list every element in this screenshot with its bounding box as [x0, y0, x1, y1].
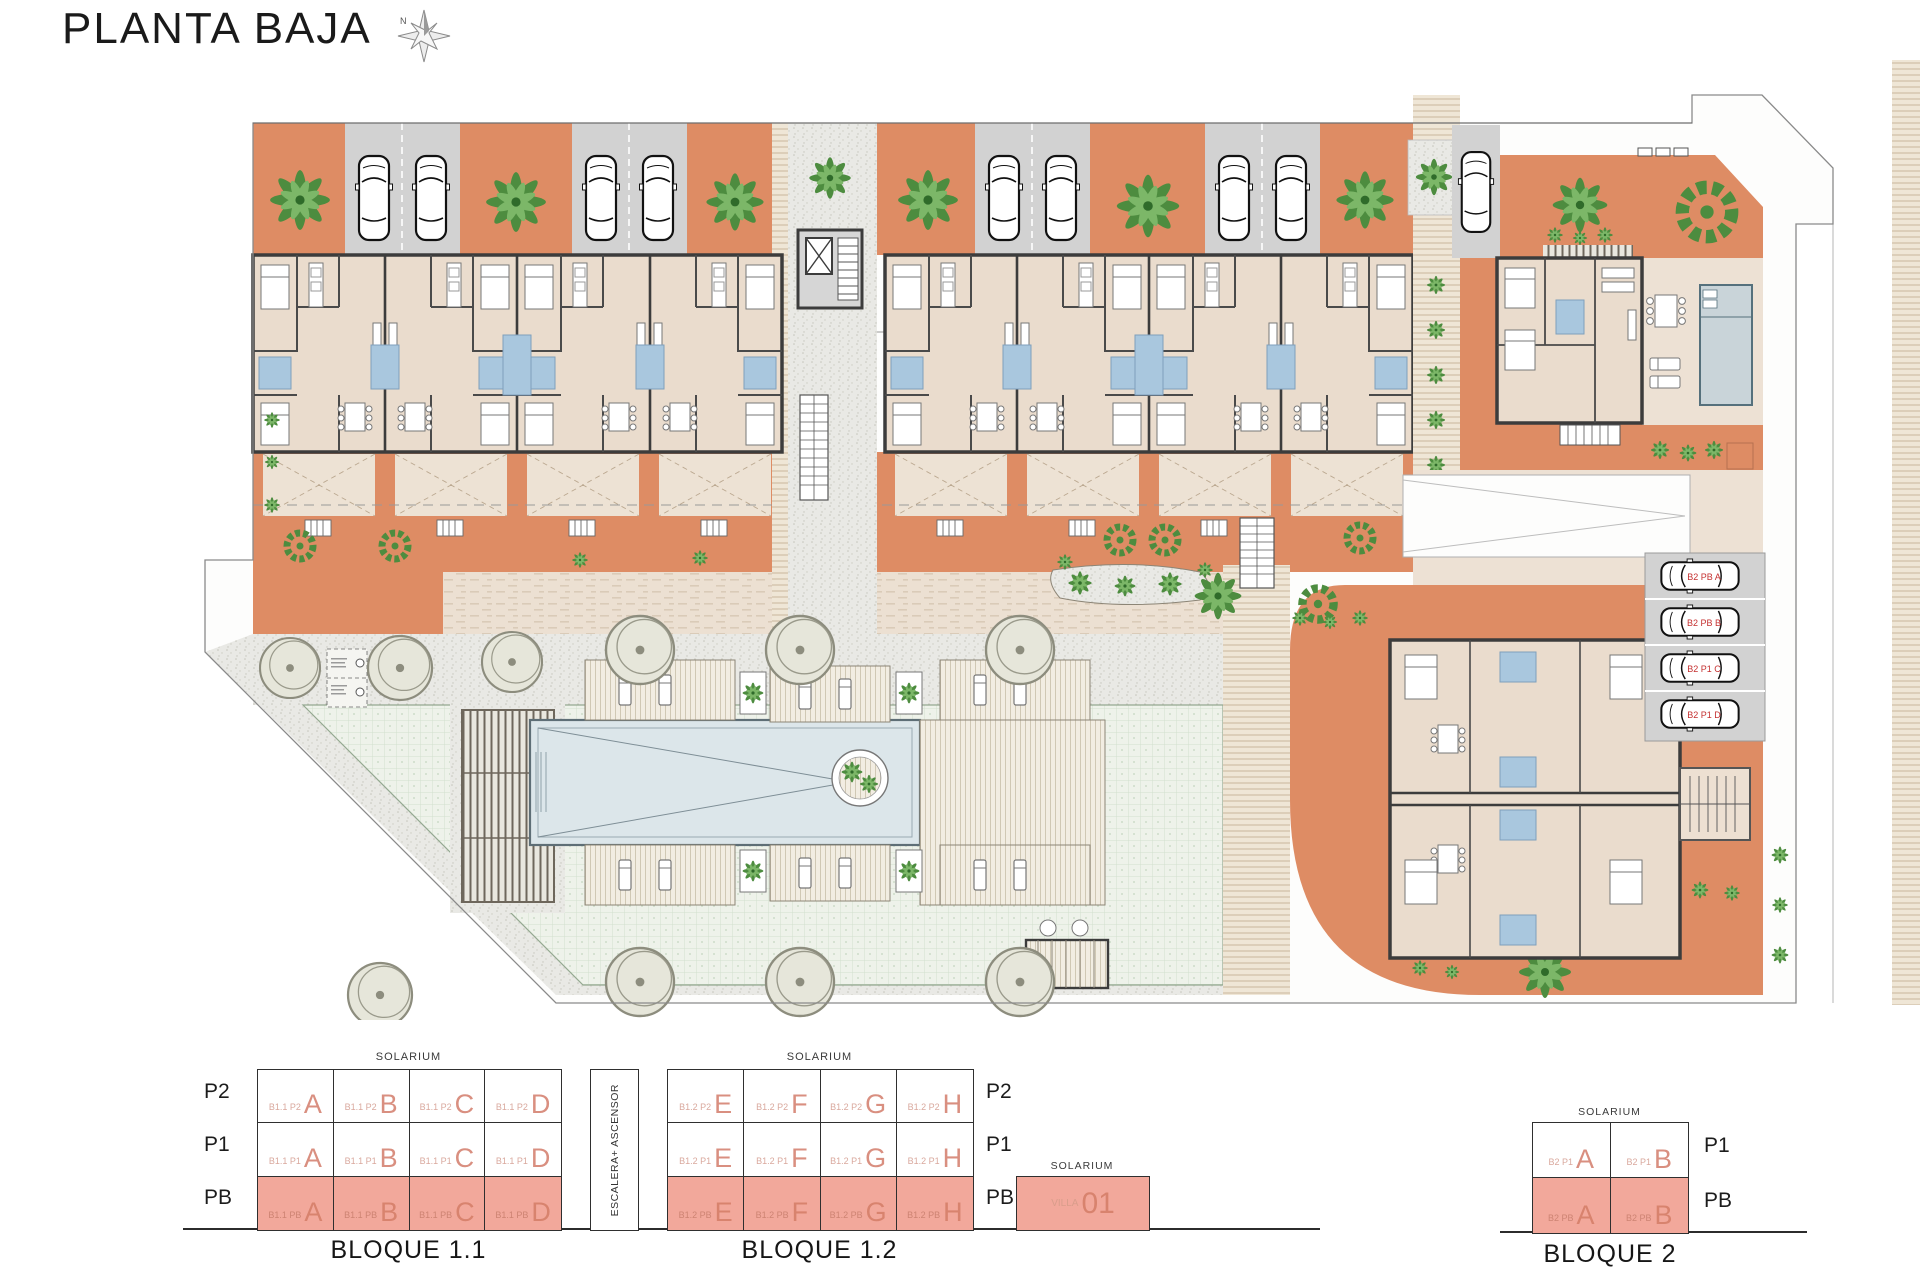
row-label-b12-p1: P1: [986, 1133, 1012, 1157]
bloque-2-table: B2 P1A B2 P1B B2 PBA B2 PBB: [1532, 1122, 1689, 1234]
bloque2-drive: [1403, 475, 1690, 557]
unit-cell[interactable]: B1.1 P1D: [485, 1123, 561, 1176]
east-road: [1833, 60, 1920, 1005]
row-label-b11-p1: P1: [204, 1133, 230, 1157]
parking-label-b2pbb: B2 PB B: [1687, 618, 1721, 628]
row-label-b11-p2: P2: [204, 1080, 230, 1104]
unit-cell[interactable]: B2 P1A: [1533, 1123, 1611, 1178]
unit-cell[interactable]: B1.1 P1B: [334, 1123, 410, 1176]
walkway-left-terrace: [253, 572, 443, 634]
parking-label-b2p1d: B2 P1 D: [1687, 710, 1721, 720]
unit-cell[interactable]: B1.2 P2F: [744, 1070, 820, 1123]
unit-cell[interactable]: B1.1 P2B: [334, 1070, 410, 1123]
unit-cell[interactable]: B1.2 P1H: [897, 1123, 973, 1176]
row-label-b12-p2: P2: [986, 1080, 1012, 1104]
unit-cell[interactable]: B1.1 P2A: [258, 1070, 334, 1123]
unit-cell-ground[interactable]: B1.2 PBF: [744, 1177, 820, 1230]
unit-cell-ground[interactable]: B1.1 PBA: [258, 1177, 334, 1230]
solarium-label-villa: SOLARIUM: [1016, 1160, 1148, 1172]
bloque-1-1-title: BLOQUE 1.1: [257, 1236, 560, 1265]
walkway-stair: [1240, 518, 1274, 588]
unit-cell[interactable]: B1.2 P1G: [821, 1123, 897, 1176]
compass-icon: N: [398, 10, 450, 62]
bloque-1-2-title: BLOQUE 1.2: [667, 1236, 972, 1265]
unit-cell-ground[interactable]: B1.2 PBE: [668, 1177, 744, 1230]
stair-elevator-core-label: ESCALERA+ ASCENSOR: [609, 1084, 621, 1216]
unit-cell[interactable]: B1.2 P2E: [668, 1070, 744, 1123]
unit-cell[interactable]: B1.1 P1A: [258, 1123, 334, 1176]
unit-cell-ground[interactable]: B1.2 PBH: [897, 1177, 973, 1230]
stair-elevator-corridor: [772, 123, 877, 634]
site-plan: B2 PB A B2 PB B B2 P1 C B2 P1 D N: [0, 0, 1920, 1020]
solarium-label-b11: SOLARIUM: [257, 1051, 560, 1063]
unit-cell-ground[interactable]: B2 PBB: [1611, 1178, 1689, 1233]
unit-cell-ground[interactable]: B1.2 PBG: [821, 1177, 897, 1230]
villa-01-cell[interactable]: VILLA01: [1016, 1176, 1150, 1231]
bloque-1-1-building: [253, 255, 782, 452]
unit-cell[interactable]: B1.1 P1C: [410, 1123, 486, 1176]
stair-elevator-core-box: ESCALERA+ ASCENSOR: [590, 1069, 639, 1231]
villa-plot: [1452, 125, 1763, 470]
row-label-b2-pb: PB: [1704, 1189, 1732, 1213]
bloque-1-2-table: B1.2 P2E B1.2 P2F B1.2 P2G B1.2 P2H B1.2…: [667, 1069, 974, 1231]
row-label-b11-pb: PB: [204, 1186, 232, 1210]
deck-strip-east: [1223, 565, 1290, 995]
parking-label-b2pba: B2 PB A: [1687, 572, 1721, 582]
unit-cell[interactable]: B1.2 P1E: [668, 1123, 744, 1176]
unit-cell-ground[interactable]: B1.1 PBD: [485, 1177, 561, 1230]
bloque-1-2-building: [885, 255, 1413, 452]
unit-cell[interactable]: B1.2 P2G: [821, 1070, 897, 1123]
unit-cell[interactable]: B1.1 P2C: [410, 1070, 486, 1123]
row-label-b12-pb: PB: [986, 1186, 1014, 1210]
row-label-b2-p1: P1: [1704, 1134, 1730, 1158]
unit-cell[interactable]: B2 P1B: [1611, 1123, 1689, 1178]
solarium-label-b2: SOLARIUM: [1532, 1106, 1687, 1118]
unit-cell-ground[interactable]: B1.1 PBB: [334, 1177, 410, 1230]
unit-cell[interactable]: B1.2 P2H: [897, 1070, 973, 1123]
annotation-box: [327, 649, 367, 707]
pool-island-planter: [832, 750, 888, 806]
solarium-label-b12: SOLARIUM: [667, 1051, 972, 1063]
unit-cell-ground[interactable]: B2 PBA: [1533, 1178, 1611, 1233]
bloque-1-1-table: B1.1 P2A B1.1 P2B B1.1 P2C B1.1 P2D B1.1…: [257, 1069, 562, 1231]
bloque-2-title: BLOQUE 2: [1510, 1240, 1710, 1269]
bloque-2-parking: B2 PB A B2 PB B B2 P1 C B2 P1 D: [1645, 553, 1765, 741]
unit-cell[interactable]: B1.1 P2D: [485, 1070, 561, 1123]
compass-north-label: N: [400, 16, 407, 26]
parking-label-b2p1c: B2 P1 C: [1687, 664, 1721, 674]
unit-cell-ground[interactable]: B1.1 PBC: [410, 1177, 486, 1230]
unit-cell[interactable]: B1.2 P1F: [744, 1123, 820, 1176]
